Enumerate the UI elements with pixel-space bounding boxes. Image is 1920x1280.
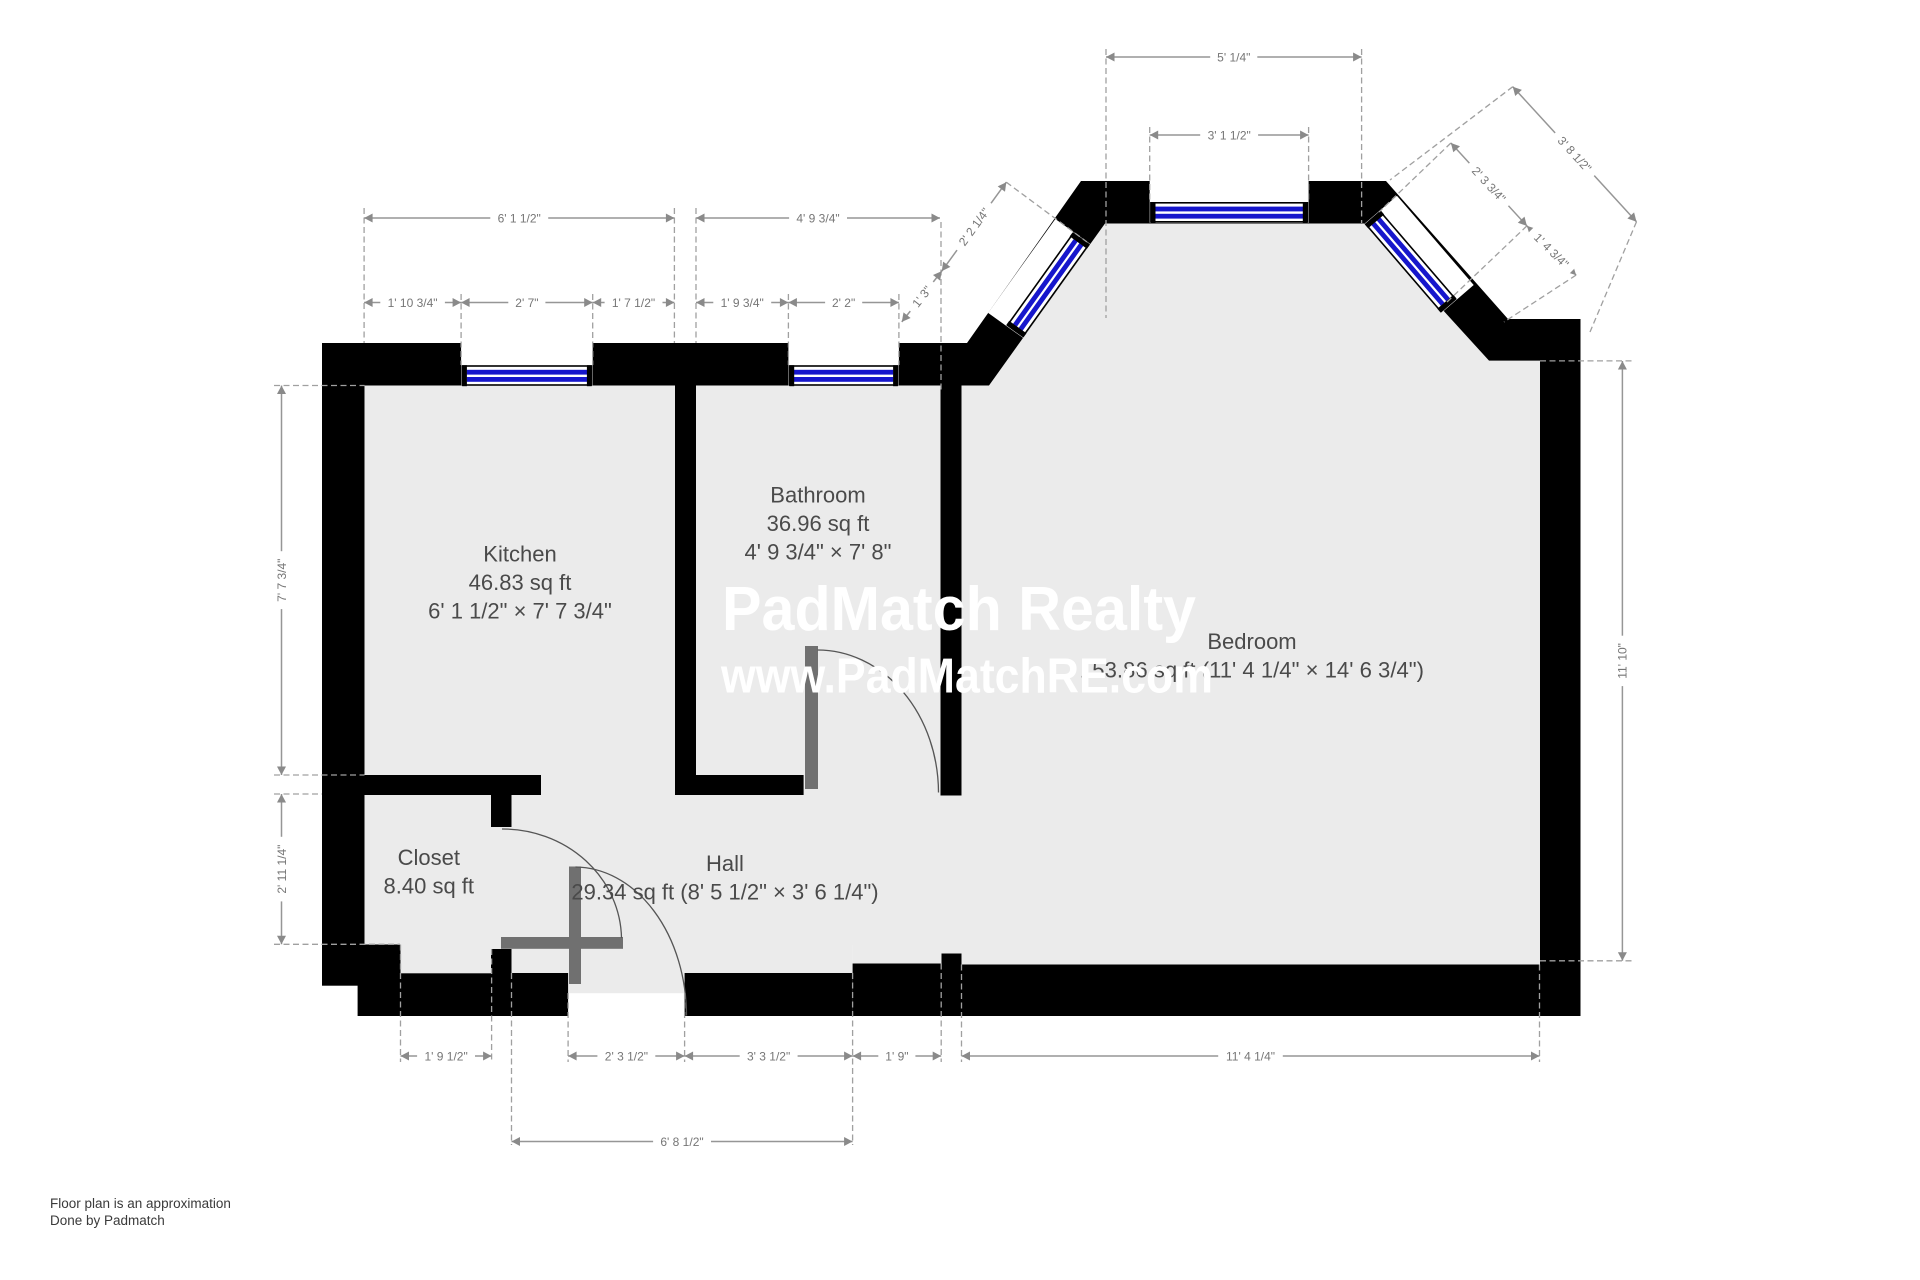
svg-text:Done by Padmatch: Done by Padmatch <box>50 1213 165 1228</box>
svg-text:3' 3 1/2": 3' 3 1/2" <box>747 1049 790 1063</box>
svg-text:36.96 sq ft: 36.96 sq ft <box>767 511 870 536</box>
svg-text:6' 8 1/2": 6' 8 1/2" <box>660 1135 703 1149</box>
svg-text:1' 9": 1' 9" <box>885 1049 908 1063</box>
svg-text:Bathroom: Bathroom <box>770 483 865 508</box>
svg-text:Kitchen: Kitchen <box>483 542 556 567</box>
svg-text:2' 7": 2' 7" <box>515 296 538 310</box>
svg-text:PadMatch Realty: PadMatch Realty <box>722 575 1196 644</box>
svg-text:7' 7 3/4": 7' 7 3/4" <box>275 559 289 602</box>
svg-text:8.40 sq ft: 8.40 sq ft <box>384 873 475 898</box>
svg-text:1' 7 1/2": 1' 7 1/2" <box>612 296 655 310</box>
svg-text:2' 11 1/4": 2' 11 1/4" <box>275 845 289 894</box>
svg-text:4' 9 3/4" × 7' 8": 4' 9 3/4" × 7' 8" <box>745 539 892 564</box>
svg-text:5' 1/4": 5' 1/4" <box>1217 50 1250 64</box>
svg-text:Closet: Closet <box>398 845 460 870</box>
svg-text:4' 9 3/4": 4' 9 3/4" <box>796 211 839 225</box>
svg-text:11' 10": 11' 10" <box>1616 643 1630 679</box>
svg-text:1' 9 3/4": 1' 9 3/4" <box>721 296 764 310</box>
svg-text:Floor plan is an approximation: Floor plan is an approximation <box>50 1196 231 1211</box>
svg-text:46.83 sq ft: 46.83 sq ft <box>469 570 572 595</box>
svg-text:www.PadMatchRE.com: www.PadMatchRE.com <box>720 650 1213 704</box>
svg-text:11' 4 1/4": 11' 4 1/4" <box>1226 1049 1275 1063</box>
svg-text:6' 1 1/2" × 7' 7 3/4": 6' 1 1/2" × 7' 7 3/4" <box>428 598 612 623</box>
svg-text:Hall: Hall <box>706 851 744 876</box>
svg-text:2' 2": 2' 2" <box>832 296 855 310</box>
svg-text:3' 1 1/2": 3' 1 1/2" <box>1208 128 1251 142</box>
svg-text:Bedroom: Bedroom <box>1207 629 1296 654</box>
svg-text:29.34 sq ft (8' 5 1/2" × 3' 6: 29.34 sq ft (8' 5 1/2" × 3' 6 1/4") <box>571 879 878 904</box>
svg-text:1' 10 3/4": 1' 10 3/4" <box>388 296 438 310</box>
svg-text:6' 1 1/2": 6' 1 1/2" <box>498 211 541 225</box>
svg-text:1' 9 1/2": 1' 9 1/2" <box>424 1049 467 1063</box>
svg-text:2' 3 1/2": 2' 3 1/2" <box>605 1049 648 1063</box>
